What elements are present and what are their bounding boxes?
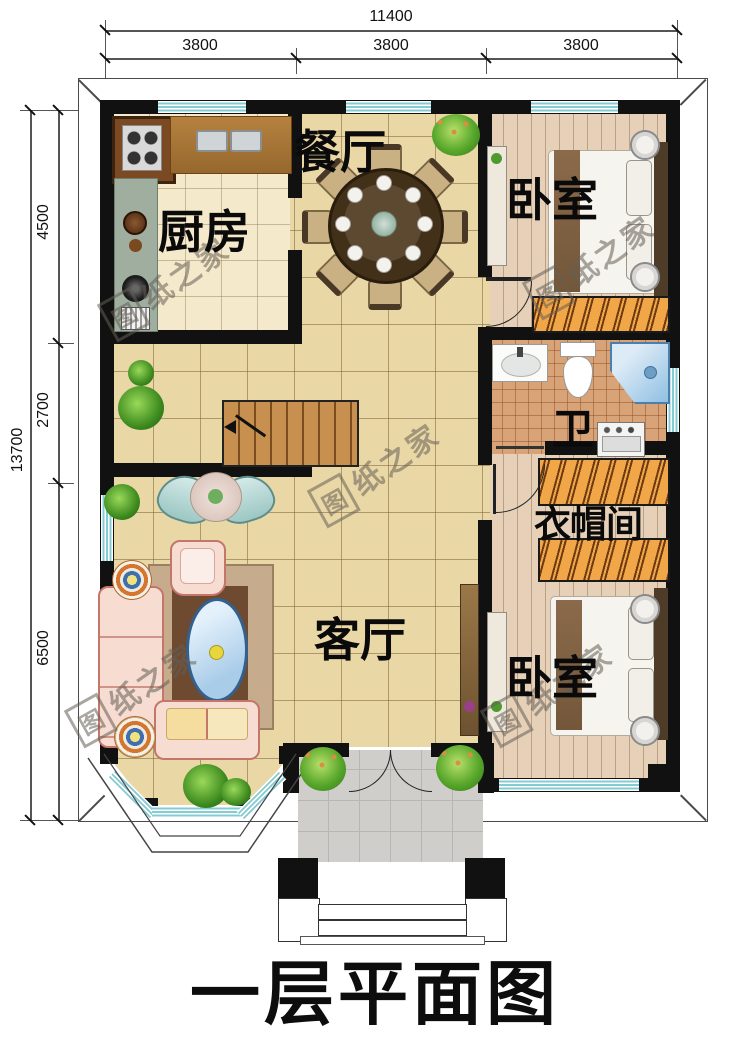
wall-center-vertical: [478, 330, 492, 465]
dimension-line-left-segments: [58, 110, 60, 820]
coffee-table-deco: [209, 645, 224, 660]
dim-left-total: 13700: [9, 410, 27, 490]
plate: [417, 216, 433, 232]
armchair: [170, 540, 226, 596]
plant-bay-small: [221, 778, 251, 806]
porch-step: [318, 920, 467, 936]
kitchen-sink: [230, 130, 262, 152]
kitchen-counter-left: [114, 178, 158, 332]
label-closet: 衣帽间: [534, 494, 642, 548]
sofa-loveseat: [154, 700, 260, 760]
label-dining: 餐厅: [294, 116, 386, 182]
side-table: [112, 560, 152, 600]
porch-bush-right: [436, 745, 484, 791]
wall-kitchen-south: [100, 330, 302, 344]
dim-top-seg3: 3800: [546, 37, 616, 55]
page-title: 一层平面图: [120, 938, 630, 1038]
washing-machine: [597, 422, 645, 457]
dimension-line-top-total: [105, 30, 677, 32]
wall-kitchen-east: [288, 250, 302, 344]
wall-light: [630, 594, 660, 624]
tv-cabinet: [460, 584, 479, 736]
label-bedroom-top: 卧室: [506, 164, 598, 230]
window-bedroom-bottom: [499, 779, 639, 791]
cooktop: [122, 125, 162, 171]
side-table: [114, 716, 156, 758]
dimension-line-left-total: [30, 110, 32, 820]
plant-hall-small: [128, 360, 154, 386]
stairs-arrow: [224, 420, 236, 434]
window-bedroom-top: [531, 101, 618, 113]
porch-column: [278, 858, 318, 898]
small-appliance: [121, 307, 150, 330]
plate: [335, 216, 351, 232]
leisure-table-deco: [208, 489, 223, 504]
wardrobe-bedroom-top: [532, 296, 670, 333]
kitchen-sink: [196, 130, 228, 152]
dim-top-total: 11400: [351, 8, 431, 26]
label-bathroom: 卫: [552, 396, 594, 457]
shower-drain: [644, 366, 657, 379]
wall-east: [666, 100, 680, 792]
porch-bush-left: [300, 747, 346, 791]
floor-plan: 11400 3800 3800 3800 13700 4500 2700 650…: [0, 0, 750, 1038]
bathroom-sink: [492, 344, 548, 382]
dresser: [487, 146, 507, 266]
armchair-cushion: [180, 548, 215, 584]
dresser-plant: [491, 701, 502, 712]
stove: [112, 116, 176, 184]
label-bedroom-bottom: 卧室: [506, 642, 598, 708]
porch-column: [465, 858, 505, 898]
dim-top-seg1: 3800: [165, 37, 235, 55]
washer-door: [602, 436, 641, 452]
coffee-table: [186, 598, 248, 702]
dresser: [487, 612, 507, 732]
dining-chair: [368, 280, 402, 310]
centerpiece: [371, 211, 397, 237]
dim-top-seg2: 3800: [356, 37, 426, 55]
wall-light: [630, 262, 660, 292]
faucet: [517, 347, 523, 357]
dining-table-group: [328, 168, 438, 278]
plant-living: [104, 484, 140, 520]
dimension-line-top-segments: [105, 58, 677, 60]
wall-corner-block: [648, 764, 680, 792]
toilet-tank: [560, 342, 596, 357]
label-living: 客厅: [314, 604, 406, 670]
label-kitchen: 厨房: [158, 196, 250, 262]
wall-light: [630, 716, 660, 746]
dresser-plant: [491, 153, 502, 164]
plant-hall: [118, 386, 164, 430]
pillow: [628, 668, 654, 722]
door-leaf-bathroom: [496, 446, 544, 449]
gas-burner: [122, 275, 149, 302]
leisure-table: [190, 472, 242, 522]
cabinet-flowers: [464, 701, 475, 712]
wall-light: [630, 130, 660, 160]
window-dining: [346, 101, 431, 113]
window-kitchen: [158, 101, 246, 113]
dim-left-seg3: 6500: [35, 608, 53, 688]
pot-small: [129, 239, 142, 252]
porch-step: [318, 904, 467, 920]
plate: [376, 257, 392, 273]
dim-left-seg1: 4500: [35, 182, 53, 262]
plant-dining: [432, 114, 480, 156]
staircase: [222, 400, 359, 467]
loveseat-cushions: [166, 708, 248, 740]
dim-left-seg2: 2700: [35, 370, 53, 450]
pot: [123, 211, 147, 235]
pillow: [626, 160, 652, 216]
